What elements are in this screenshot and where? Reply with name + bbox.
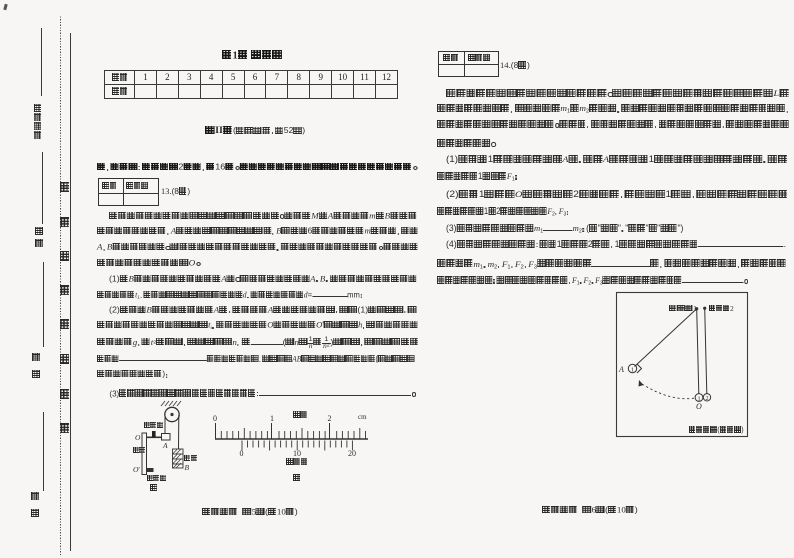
svg-text:2: 2: [705, 395, 708, 402]
svg-text:1: 1: [631, 367, 634, 374]
